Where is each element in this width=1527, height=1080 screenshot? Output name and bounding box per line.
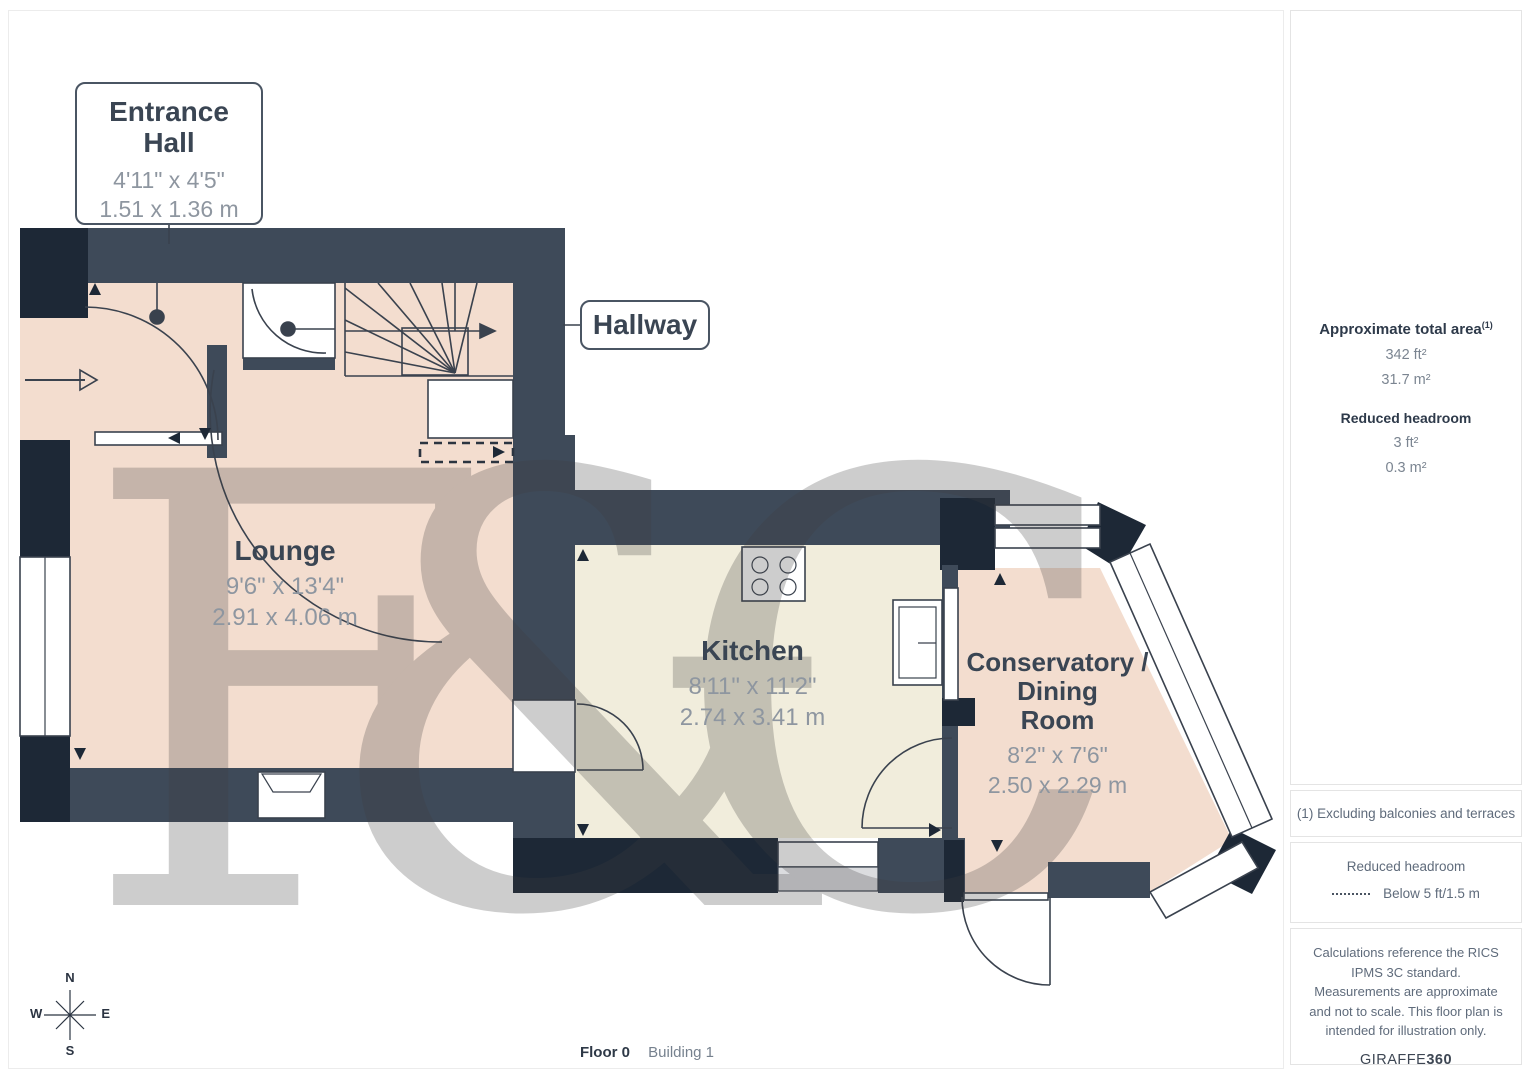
disclaimer-text: Calculations reference the RICS IPMS 3C … (1308, 943, 1504, 1041)
legend-box: Reduced headroom Below 5 ft/1.5 m (1290, 842, 1522, 923)
total-area-superscript: (1) (1482, 320, 1493, 330)
brand-suffix: 360 (1426, 1052, 1452, 1068)
total-area-metric: 31.7 m² (1381, 372, 1430, 388)
room-dims: 4'11" x 4'5" 1.51 x 1.36 m (77, 166, 261, 225)
compass-east: E (101, 1006, 110, 1021)
room-dims-metric: 1.51 x 1.36 m (77, 195, 261, 224)
room-dims-metric: 2.74 x 3.41 m (600, 703, 905, 734)
total-area-imperial: 342 ft² (1385, 347, 1426, 363)
kitchen-label: Kitchen 8'11" x 11'2" 2.74 x 3.41 m (600, 635, 905, 734)
room-name: Hallway (593, 309, 697, 340)
hallway-tag: Hallway (580, 300, 710, 350)
room-name: Lounge (130, 535, 440, 566)
entrance-hall-tag: Entrance Hall 4'11" x 4'5" 1.51 x 1.36 m (75, 82, 263, 225)
legend-text: Below 5 ft/1.5 m (1383, 886, 1480, 901)
reduced-headroom-title: Reduced headroom (1341, 410, 1472, 426)
disclaimer-box: Calculations reference the RICS IPMS 3C … (1290, 928, 1522, 1065)
room-dims: 8'11" x 11'2" 2.74 x 3.41 m (600, 672, 905, 733)
info-sidebar: Approximate total area(1) 342 ft² 31.7 m… (1290, 10, 1522, 1070)
room-dims: 9'6" x 13'4" 2.91 x 4.06 m (130, 572, 440, 633)
reduced-headroom-imperial: 3 ft² (1394, 435, 1419, 451)
room-dims-imperial: 9'6" x 13'4" (130, 572, 440, 603)
room-name: Conservatory / Dining Room (950, 648, 1165, 735)
room-dims-metric: 2.50 x 2.29 m (950, 771, 1165, 800)
area-summary-box: Approximate total area(1) 342 ft² 31.7 m… (1290, 10, 1522, 785)
footnote-text: (1) Excluding balconies and terraces (1297, 806, 1515, 821)
room-dims-imperial: 8'11" x 11'2" (600, 672, 905, 703)
compass-west: W (30, 1006, 42, 1021)
building-label: Building 1 (648, 1044, 714, 1061)
room-name: Kitchen (600, 635, 905, 666)
total-area-title: Approximate total area(1) (1319, 320, 1493, 338)
compass-north: N (65, 970, 74, 985)
floor-label: Floor 0 (580, 1044, 630, 1061)
lounge-label: Lounge 9'6" x 13'4" 2.91 x 4.06 m (130, 535, 440, 634)
brand-logo: GIRAFFE360 (1308, 1052, 1504, 1068)
room-dims-imperial: 4'11" x 4'5" (77, 166, 261, 195)
room-dims-metric: 2.91 x 4.06 m (130, 603, 440, 634)
total-area-title-text: Approximate total area (1319, 321, 1482, 338)
legend-dotted-line-icon (1332, 893, 1370, 895)
floor-caption: Floor 0 Building 1 (8, 1044, 1286, 1061)
reduced-headroom-metric: 0.3 m² (1385, 460, 1426, 476)
brand-name: GIRAFFE (1360, 1052, 1426, 1068)
footnote-box: (1) Excluding balconies and terraces (1290, 790, 1522, 837)
floorplan-page: F&C Entrance Hall 4'11" x 4'5" 1.51 x 1.… (0, 0, 1527, 1080)
room-dims-imperial: 8'2" x 7'6" (950, 741, 1165, 770)
legend-title: Reduced headroom (1291, 859, 1521, 874)
conservatory-label: Conservatory / Dining Room 8'2" x 7'6" 2… (950, 648, 1165, 800)
room-name: Entrance Hall (77, 96, 261, 159)
room-dims: 8'2" x 7'6" 2.50 x 2.29 m (950, 741, 1165, 800)
